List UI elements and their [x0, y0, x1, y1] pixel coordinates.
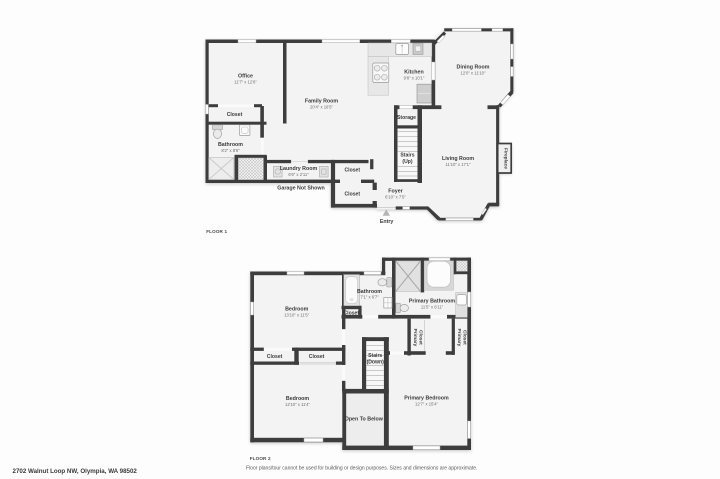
svg-text:Primary Bathroom: Primary Bathroom	[409, 299, 456, 305]
svg-text:Closet: Closet	[418, 330, 424, 345]
svg-text:Stairs: Stairs	[400, 153, 414, 159]
svg-text:11'5" x 6'11": 11'5" x 6'11"	[421, 305, 444, 310]
svg-text:Dining Room: Dining Room	[457, 65, 490, 71]
svg-text:9'8" x 10'1": 9'8" x 10'1"	[404, 76, 425, 81]
svg-text:Primary: Primary	[412, 328, 418, 346]
svg-text:12'0" x 11'10": 12'0" x 11'10"	[461, 71, 486, 76]
svg-text:Family Room: Family Room	[305, 99, 339, 105]
svg-text:Garage Not Shown: Garage Not Shown	[277, 185, 324, 191]
svg-text:FLOOR 2: FLOOR 2	[250, 456, 271, 461]
svg-text:Closet: Closet	[461, 330, 467, 345]
svg-text:Kitchen: Kitchen	[404, 70, 423, 76]
svg-text:Open To Below: Open To Below	[345, 417, 384, 423]
svg-text:Stairs: Stairs	[368, 353, 382, 359]
svg-text:11'7" x 12'6": 11'7" x 12'6"	[234, 79, 257, 84]
svg-text:Fireplace: Fireplace	[503, 148, 509, 169]
svg-text:11'10" x 17'1": 11'10" x 17'1"	[446, 162, 471, 167]
svg-text:(Up): (Up)	[402, 159, 412, 165]
svg-text:8'2" x 8'6": 8'2" x 8'6"	[221, 148, 240, 153]
svg-text:Primary: Primary	[456, 328, 462, 346]
svg-text:Closet: Closet	[227, 112, 243, 118]
svg-text:7'1" x 6'7": 7'1" x 6'7"	[360, 294, 379, 299]
svg-text:2702 Walnut Loop NW, Olympia,: 2702 Walnut Loop NW, Olympia, WA 98502	[13, 468, 138, 475]
svg-text:12'7" x 15'4": 12'7" x 15'4"	[415, 402, 438, 407]
svg-text:Closet: Closet	[345, 168, 361, 174]
svg-text:Closet: Closet	[267, 354, 283, 360]
svg-text:6'10" x 7'5": 6'10" x 7'5"	[385, 194, 406, 199]
svg-text:Storage: Storage	[397, 115, 416, 121]
svg-text:Entry: Entry	[380, 219, 394, 225]
svg-text:Closet: Closet	[345, 192, 361, 198]
svg-text:6'6" x 2'11": 6'6" x 2'11"	[288, 172, 309, 177]
svg-text:13'10" x 11'5": 13'10" x 11'5"	[284, 312, 309, 317]
svg-text:Living Room: Living Room	[442, 156, 474, 162]
svg-text:Floor plans/tour cannot be use: Floor plans/tour cannot be used for buil…	[246, 466, 477, 472]
svg-text:(Down): (Down)	[367, 359, 385, 365]
svg-text:20'4" x 16'5": 20'4" x 16'5"	[310, 105, 333, 110]
svg-text:FLOOR 1: FLOOR 1	[206, 229, 227, 234]
svg-text:Closet: Closet	[344, 311, 360, 317]
svg-text:Closet: Closet	[309, 354, 325, 360]
svg-text:12'10" x 11'4": 12'10" x 11'4"	[285, 402, 310, 407]
